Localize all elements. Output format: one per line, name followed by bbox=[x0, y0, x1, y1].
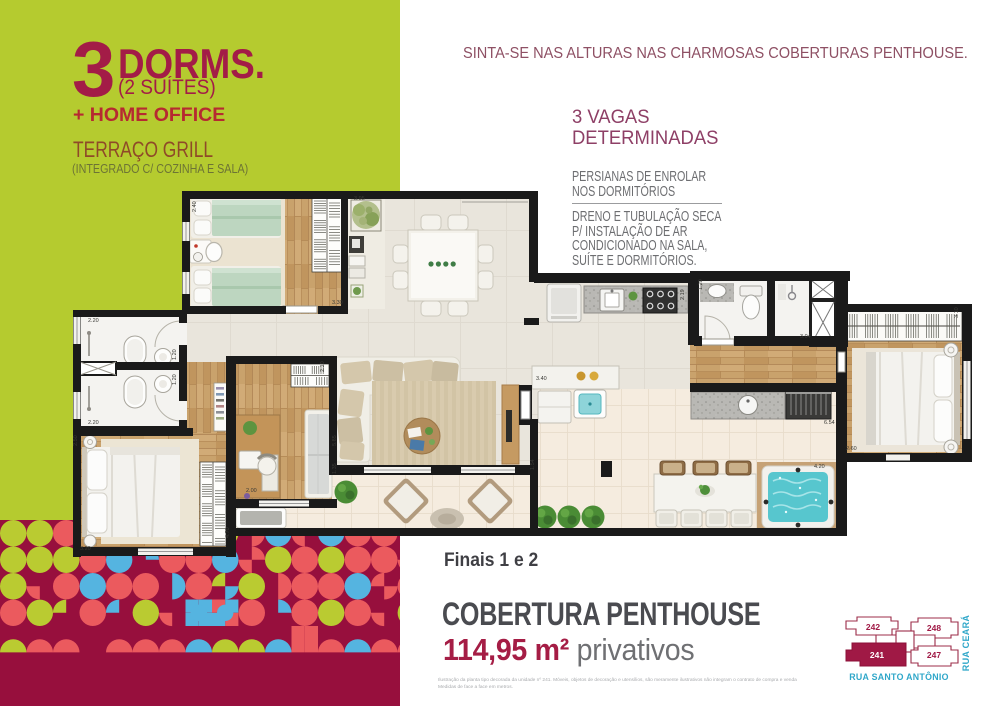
svg-text:2.00: 2.00 bbox=[246, 488, 257, 494]
svg-text:1.20: 1.20 bbox=[698, 279, 704, 290]
svg-text:3.30: 3.30 bbox=[332, 300, 343, 306]
svg-text:3.40: 3.40 bbox=[536, 376, 547, 382]
svg-text:3.20: 3.20 bbox=[80, 546, 91, 552]
svg-text:4.70: 4.70 bbox=[225, 527, 231, 538]
svg-text:RUA SANTO ANTÔNIO: RUA SANTO ANTÔNIO bbox=[849, 671, 949, 682]
svg-text:1.35: 1.35 bbox=[332, 463, 338, 474]
svg-text:3.95: 3.95 bbox=[354, 196, 365, 202]
svg-text:242: 242 bbox=[866, 622, 880, 632]
svg-text:5.85: 5.85 bbox=[332, 435, 338, 446]
svg-text:6.54: 6.54 bbox=[824, 420, 835, 426]
svg-text:248: 248 bbox=[927, 623, 941, 633]
svg-text:2.10: 2.10 bbox=[320, 361, 326, 372]
svg-text:RUA CEARÁ: RUA CEARÁ bbox=[961, 615, 971, 672]
svg-text:2.60: 2.60 bbox=[846, 446, 857, 452]
svg-text:3.10: 3.10 bbox=[954, 307, 960, 318]
svg-text:1.20: 1.20 bbox=[172, 374, 178, 385]
svg-text:3.04: 3.04 bbox=[800, 334, 811, 340]
svg-text:2.20: 2.20 bbox=[88, 318, 99, 324]
svg-text:2.50: 2.50 bbox=[73, 435, 79, 446]
svg-text:1.54: 1.54 bbox=[530, 459, 536, 470]
svg-text:2.19: 2.19 bbox=[680, 289, 686, 300]
svg-text:247: 247 bbox=[927, 650, 941, 660]
svg-text:241: 241 bbox=[870, 650, 884, 660]
svg-text:4.20: 4.20 bbox=[814, 464, 825, 470]
svg-text:2.40: 2.40 bbox=[192, 201, 198, 212]
svg-text:1.20: 1.20 bbox=[172, 349, 178, 360]
svg-text:2.20: 2.20 bbox=[88, 420, 99, 426]
